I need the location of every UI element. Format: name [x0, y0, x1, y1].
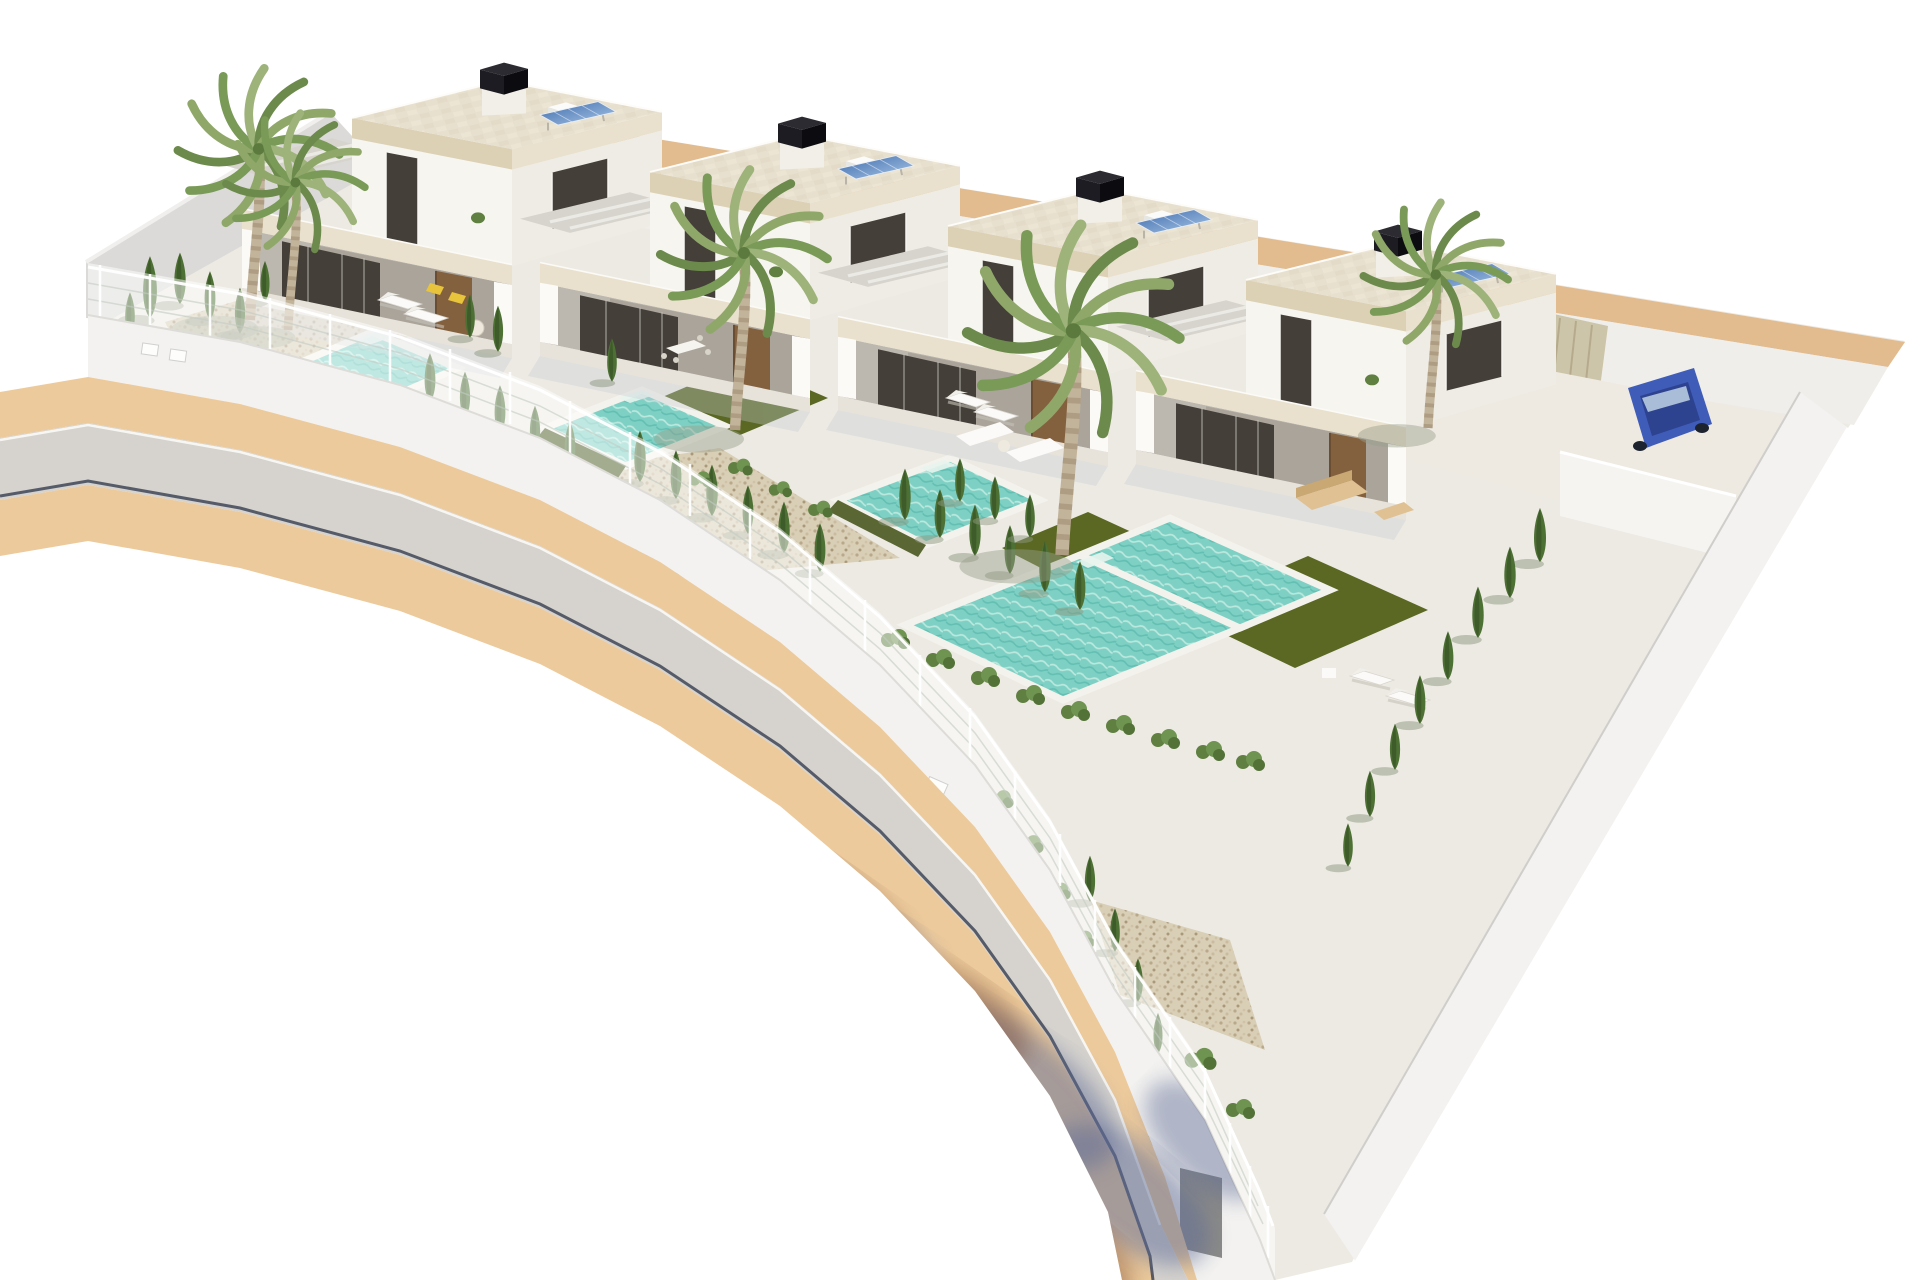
utility-box	[169, 349, 186, 362]
villa-development-render	[0, 0, 1920, 1280]
pool-box	[1322, 668, 1336, 678]
render-canvas	[0, 0, 1920, 1280]
utility-box	[141, 343, 158, 356]
coffee-table	[998, 440, 1010, 452]
